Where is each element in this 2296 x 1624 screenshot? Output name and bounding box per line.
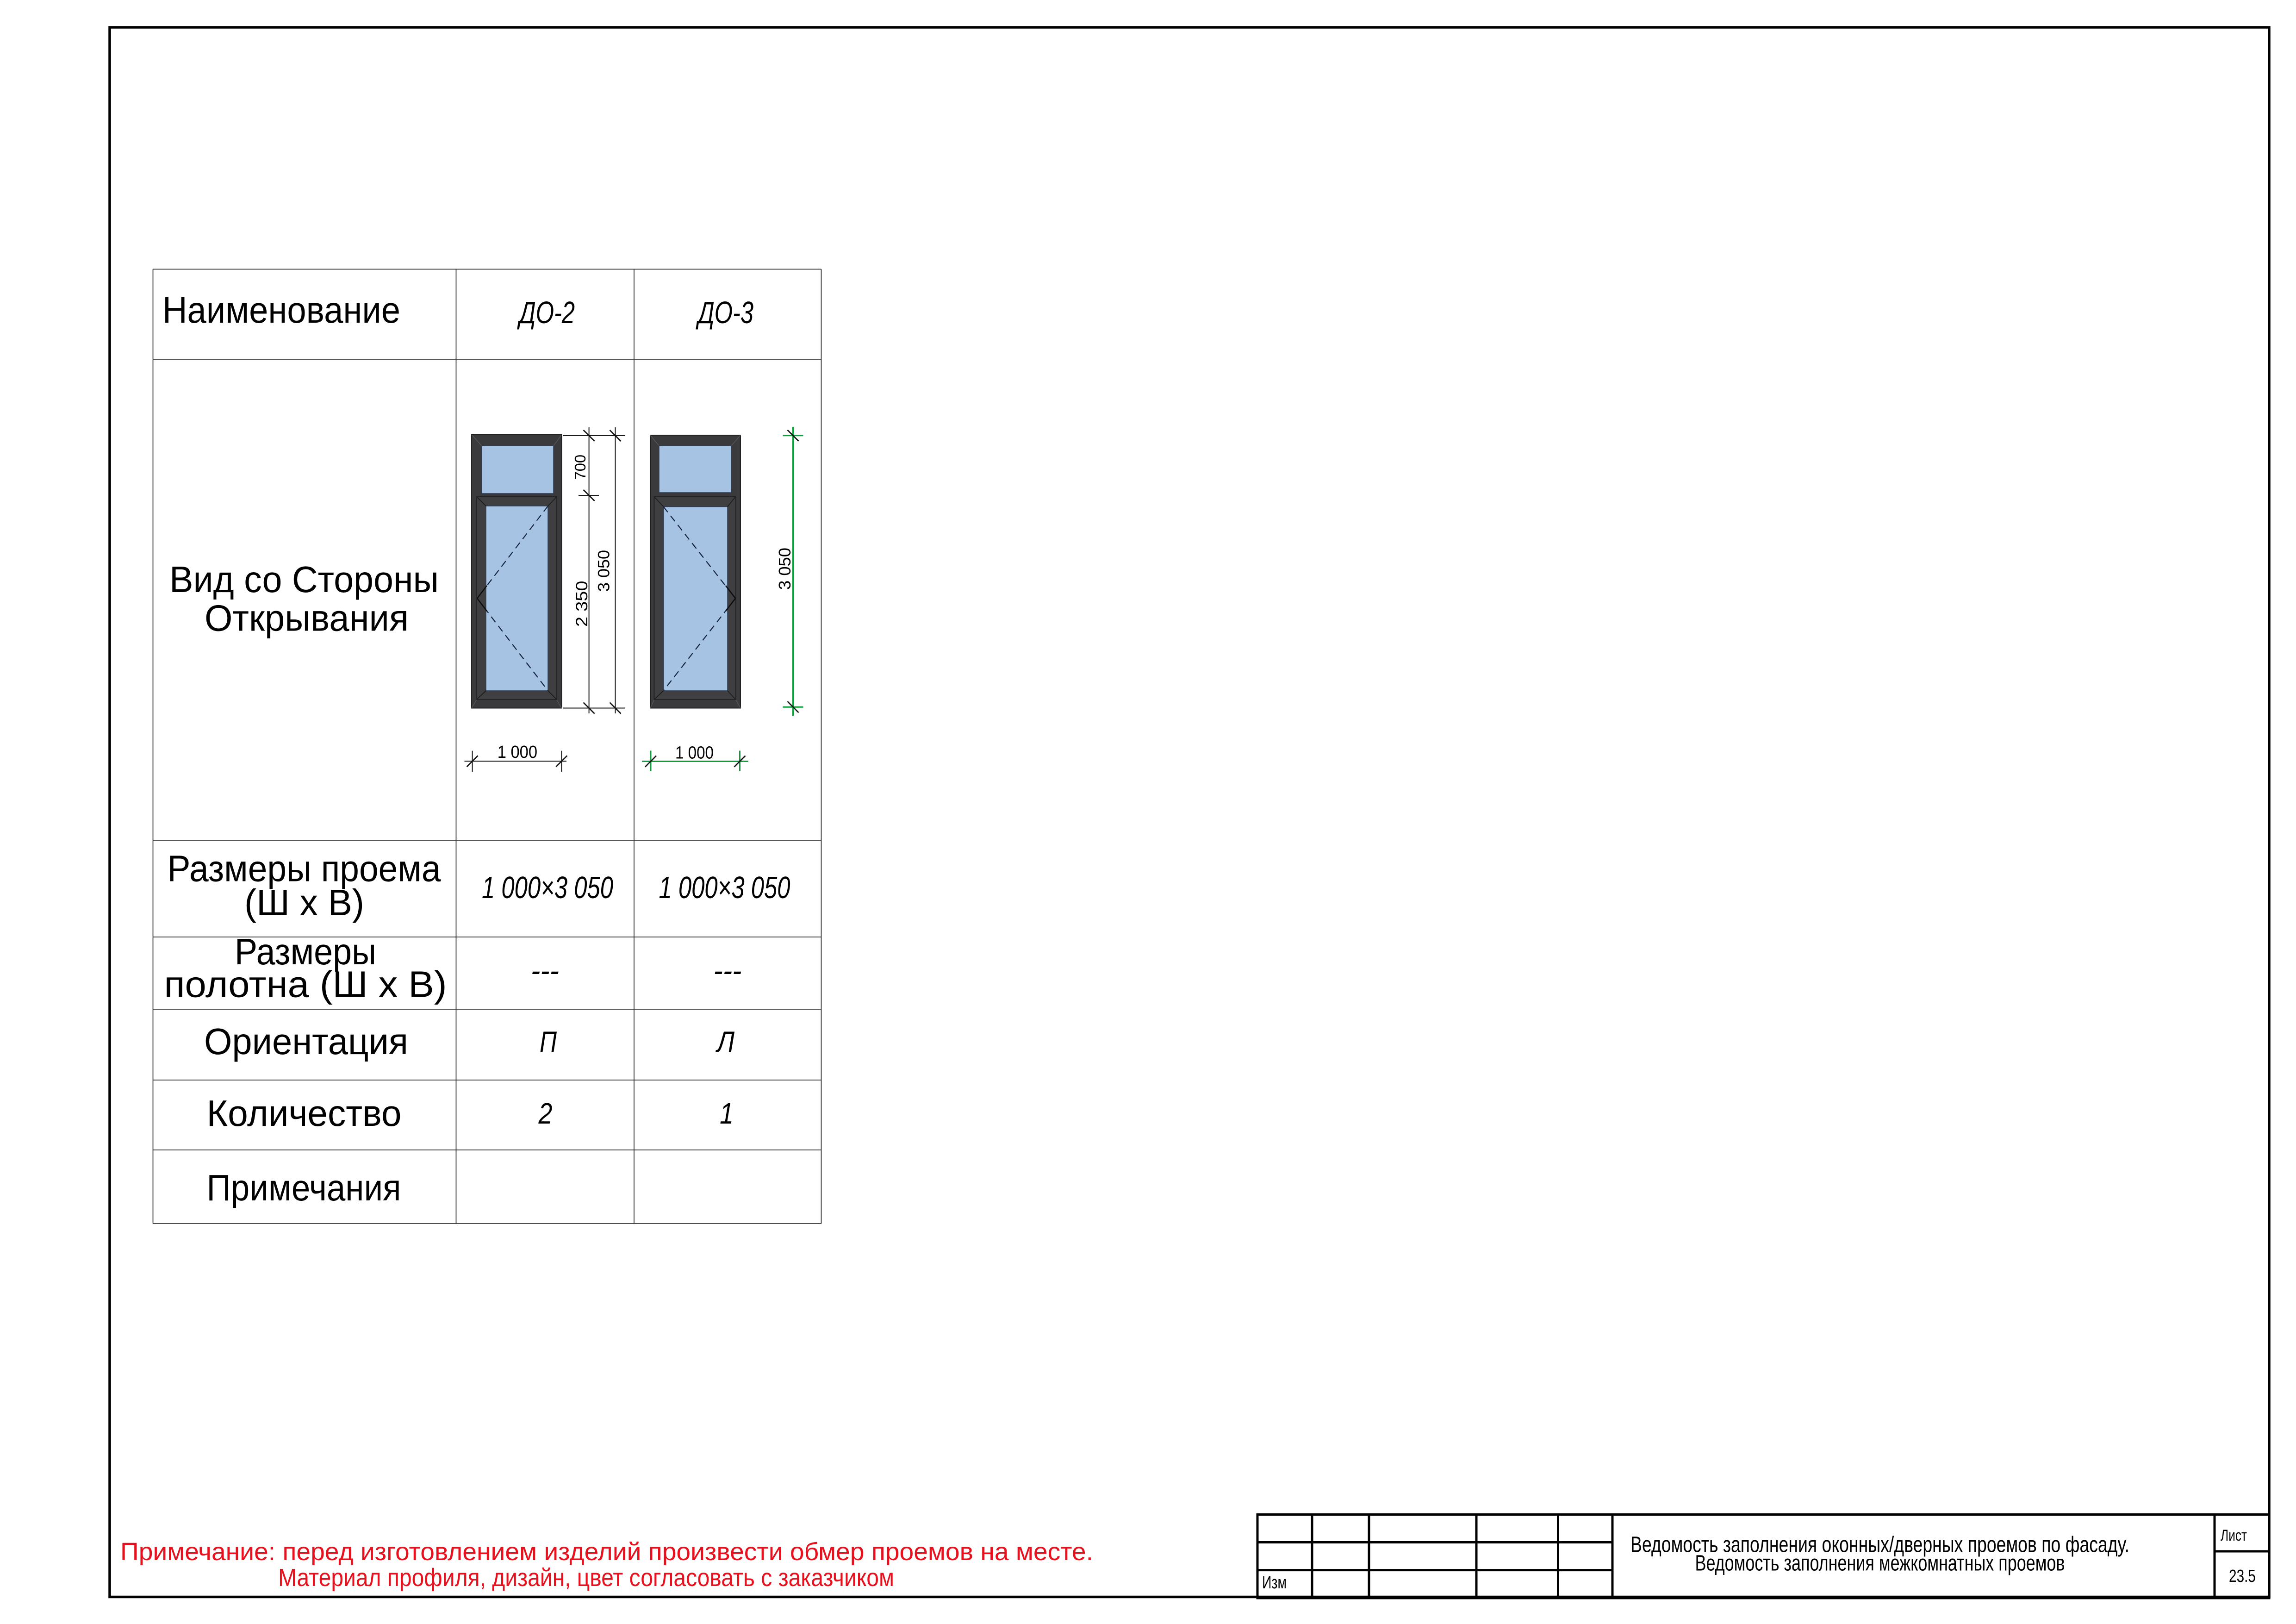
svg-text:Открывания: Открывания [205, 598, 409, 639]
svg-text:Ведомость заполнения межкомнат: Ведомость заполнения межкомнатных проемо… [1695, 1551, 2065, 1576]
svg-text:1 000×3 050: 1 000×3 050 [659, 870, 790, 905]
svg-text:700: 700 [572, 455, 589, 480]
svg-text:ДО-3: ДО-3 [696, 295, 753, 330]
svg-text:Изм: Изм [1262, 1573, 1287, 1593]
svg-text:1: 1 [720, 1097, 734, 1130]
svg-text:П: П [540, 1025, 557, 1059]
svg-text:Лист: Лист [2221, 1527, 2247, 1544]
svg-text:3 050: 3 050 [775, 548, 794, 590]
svg-text:1 000×3 050: 1 000×3 050 [482, 870, 613, 905]
svg-text:1 000: 1 000 [675, 743, 714, 763]
svg-text:(Ш х В): (Ш х В) [244, 882, 364, 923]
svg-text:Л: Л [716, 1025, 735, 1059]
svg-text:Количество: Количество [207, 1093, 402, 1134]
svg-text:Наименование: Наименование [162, 289, 400, 331]
svg-text:Вид со Стороны: Вид со Стороны [169, 559, 439, 600]
svg-text:Материал профиля, дизайн, цвет: Материал профиля, дизайн, цвет согласова… [278, 1564, 894, 1592]
svg-text:2: 2 [538, 1097, 553, 1130]
svg-text:3 050: 3 050 [595, 550, 613, 592]
svg-text:1 000: 1 000 [498, 743, 537, 762]
svg-text:ДО-2: ДО-2 [517, 295, 575, 330]
svg-text:2 350: 2 350 [573, 581, 591, 627]
svg-text:Примечания: Примечания [207, 1167, 401, 1208]
svg-text:Ориентация: Ориентация [204, 1021, 408, 1062]
svg-text:---: --- [531, 953, 559, 988]
svg-text:23.5: 23.5 [2229, 1567, 2256, 1586]
svg-text:полотна (Ш х В): полотна (Ш х В) [164, 964, 447, 1005]
svg-text:Примечание: перед изготовление: Примечание: перед изготовлением изделий … [120, 1538, 1093, 1566]
svg-text:---: --- [714, 953, 742, 988]
